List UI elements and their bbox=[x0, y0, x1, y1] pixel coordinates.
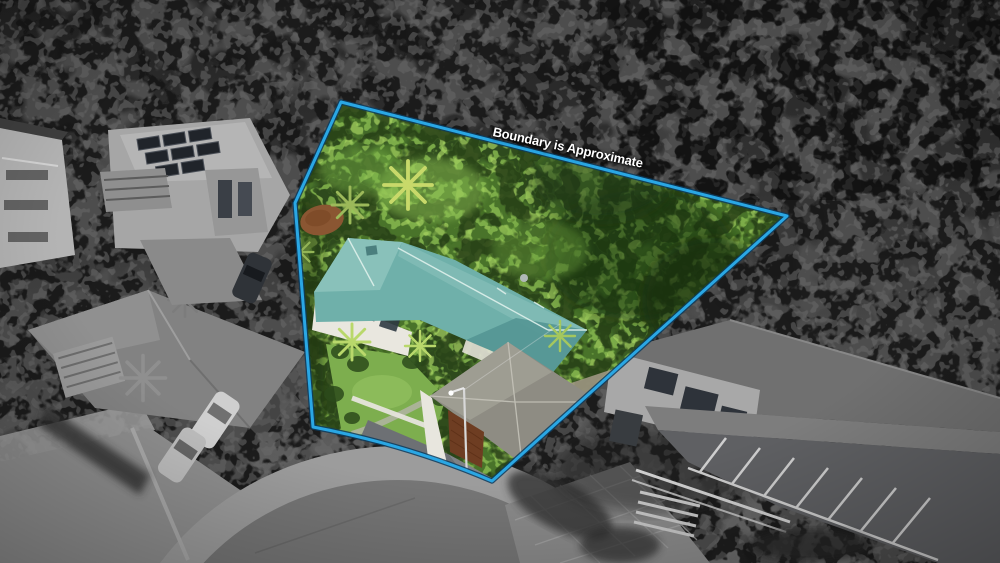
vignette bbox=[0, 0, 1000, 563]
aerial-photo: Boundary is Approximate bbox=[0, 0, 1000, 563]
property-aerial-scene bbox=[0, 0, 1000, 563]
